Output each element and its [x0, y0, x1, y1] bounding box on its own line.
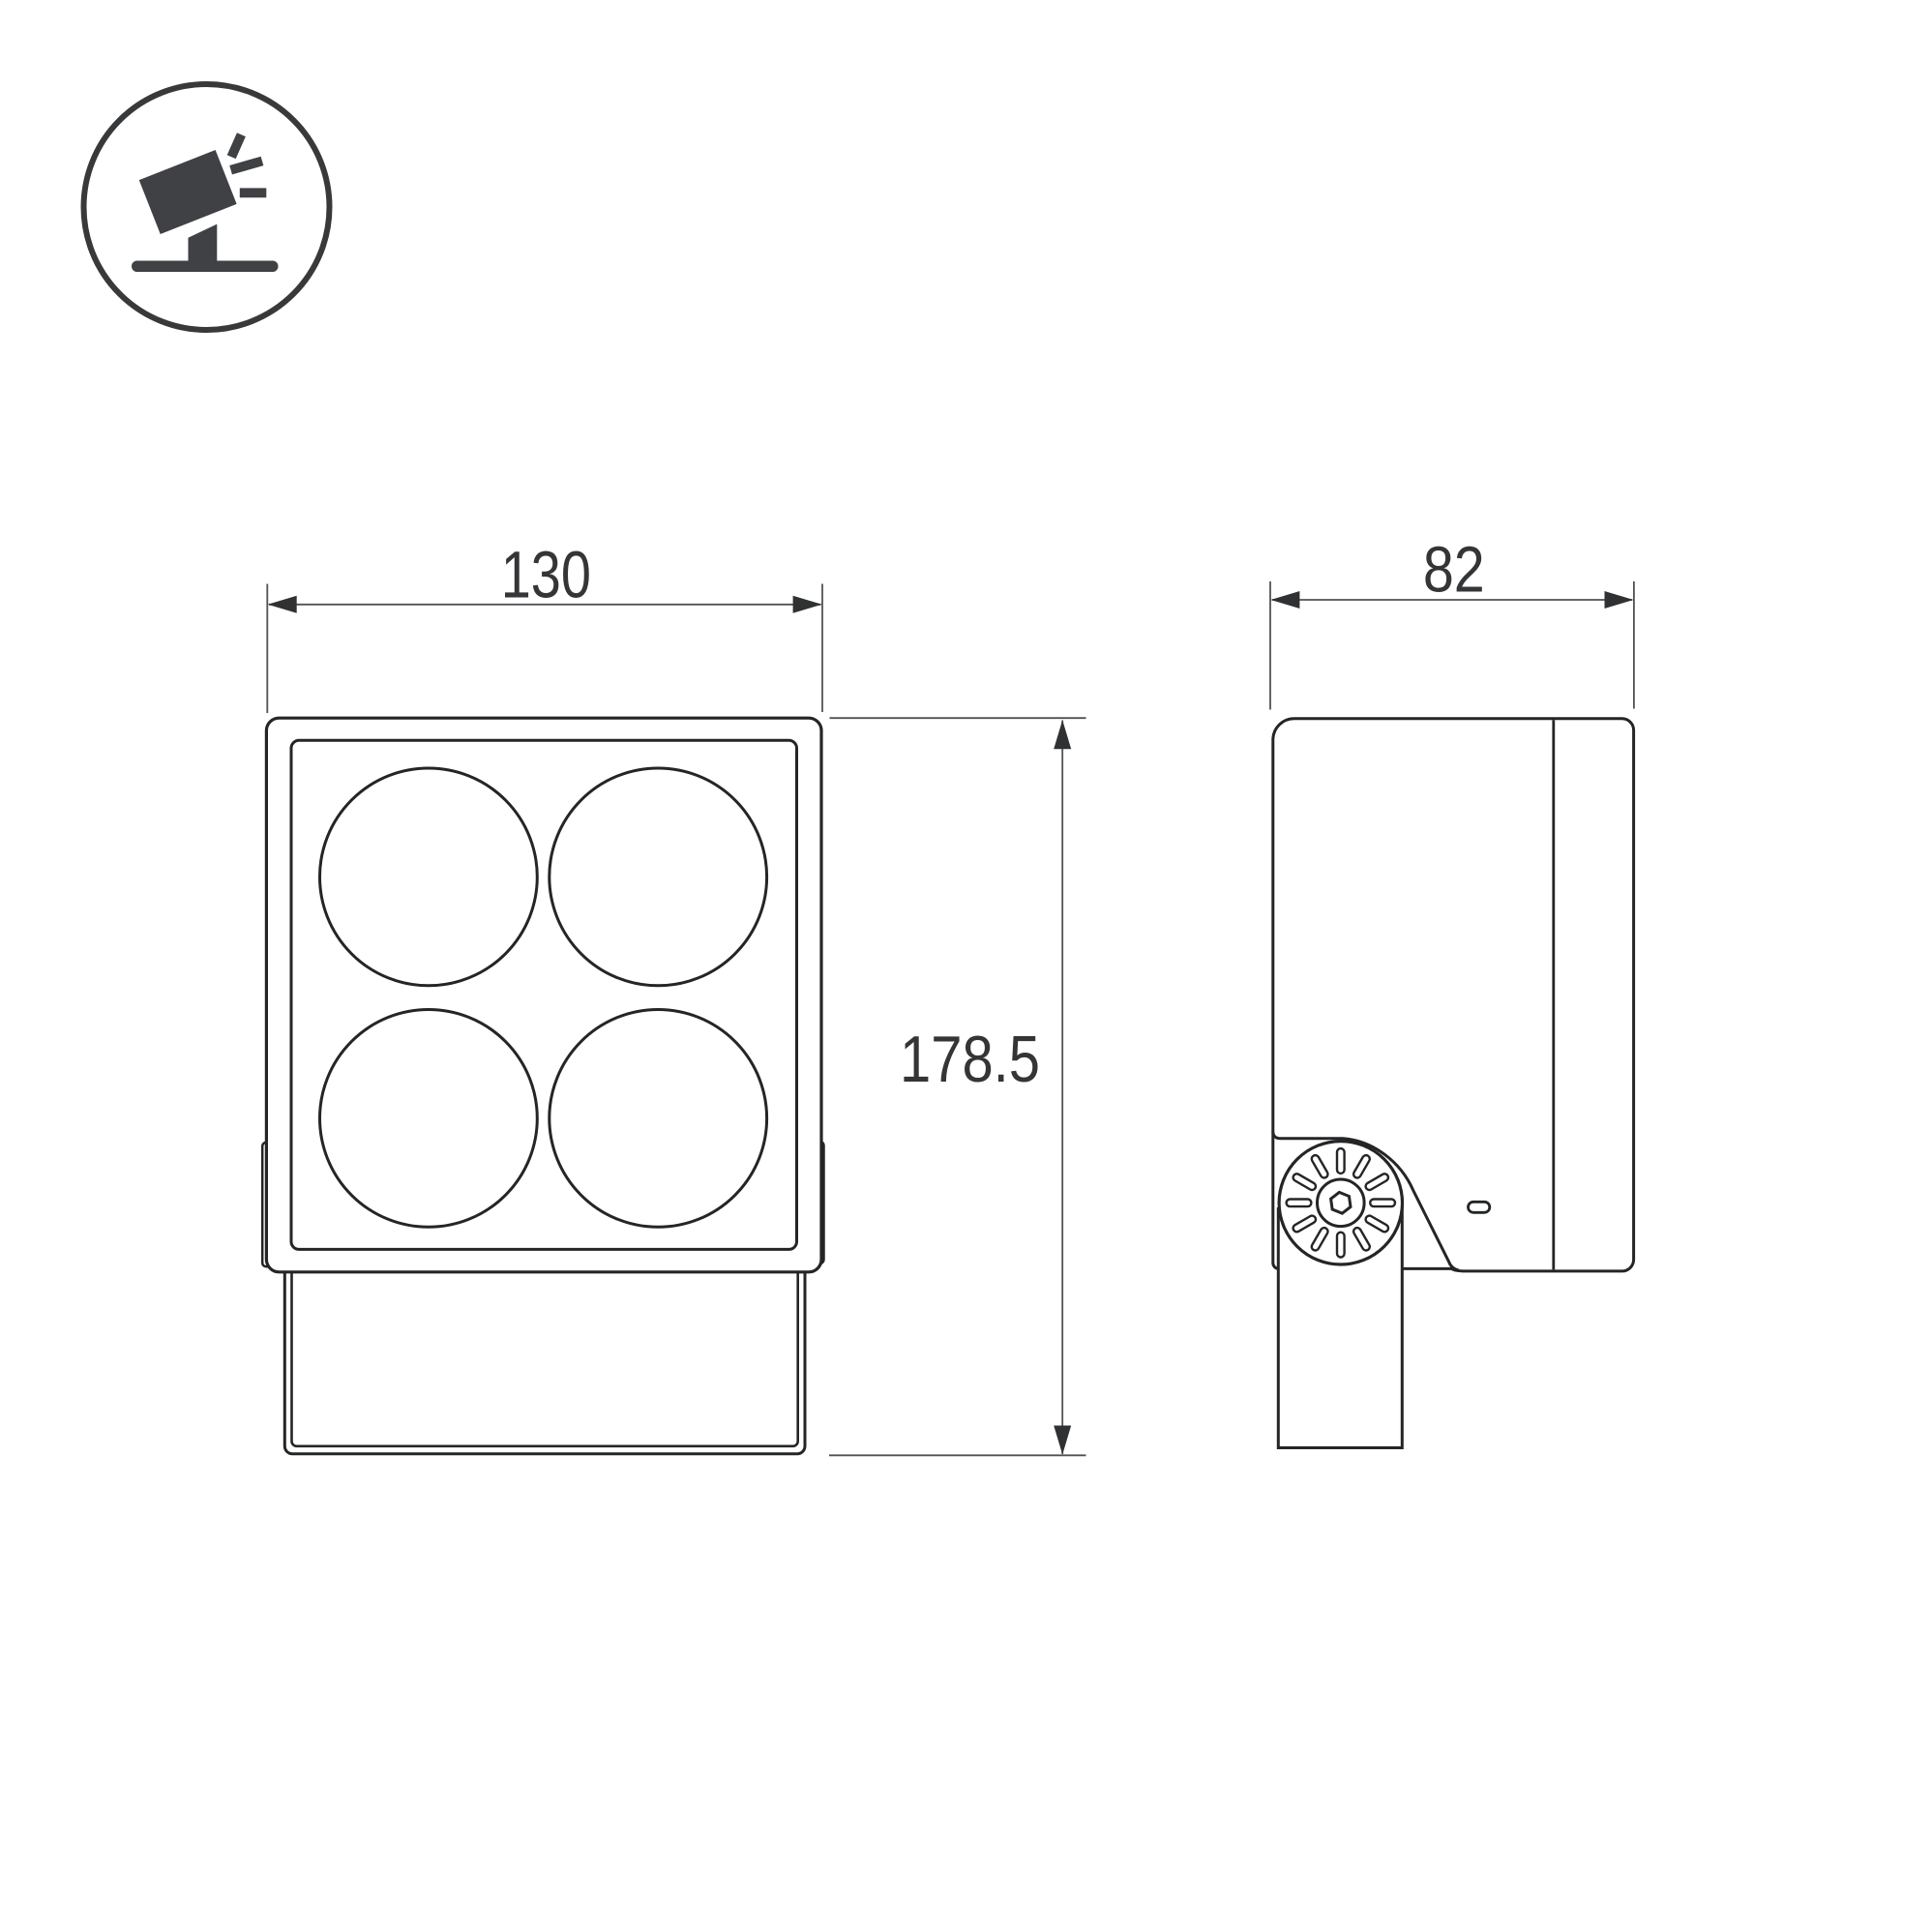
svg-text:178.5: 178.5 [900, 1023, 1040, 1096]
svg-text:82: 82 [1423, 535, 1485, 607]
svg-text:130: 130 [501, 537, 591, 611]
